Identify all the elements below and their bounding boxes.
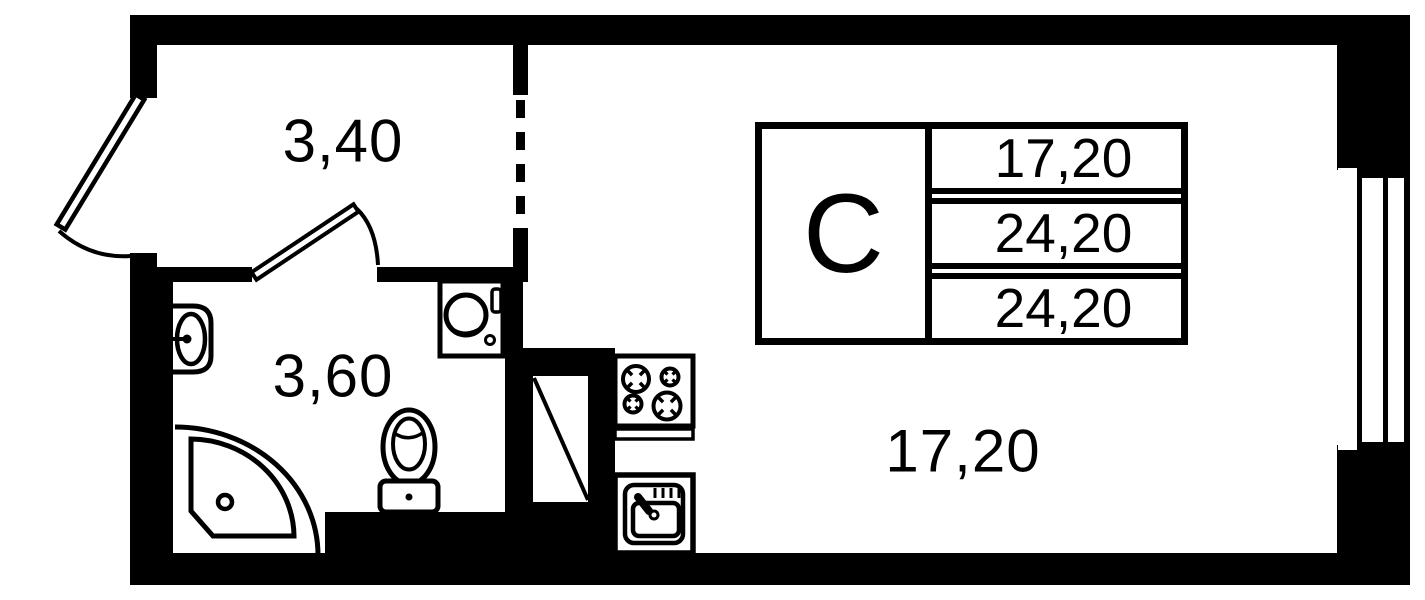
partition-stub-bottom — [513, 228, 528, 270]
interior-door-icon — [252, 204, 379, 279]
unit-stamp-table: С 17,20 24,20 24,20 — [755, 122, 1188, 345]
virtual-partition-dashed — [516, 100, 525, 214]
living-room-area-label: 17,20 — [885, 417, 1040, 486]
kitchen-sink-icon — [615, 475, 693, 553]
shower-cabin-icon — [175, 427, 318, 555]
interior-door-swing-arc — [357, 209, 378, 265]
floor-plan: 3,40 3,60 17,20 С 17,20 24,20 24,20 — [0, 0, 1425, 600]
floor-plan-drawing — [0, 0, 1425, 600]
bathroom-area-label: 3,60 — [273, 342, 394, 411]
washing-machine-icon — [440, 281, 503, 356]
window-icon — [1338, 168, 1410, 450]
bathroom-wall-top-left — [157, 267, 252, 282]
stove-icon — [615, 356, 693, 439]
wall-left-bottom — [130, 282, 173, 555]
stamp-row-total-area: 24,20 — [932, 198, 1181, 269]
interior-door-leaf — [252, 204, 359, 279]
ventilation-shaft-icon — [530, 373, 591, 505]
wall-top — [130, 15, 1410, 45]
unit-type-cell: С — [762, 129, 932, 338]
shower-drain — [218, 495, 232, 509]
stamp-row-living-area: 17,20 — [932, 129, 1181, 194]
wall-left-top — [130, 15, 157, 98]
shower-tray — [191, 439, 294, 536]
stamp-row-overall-area: 24,20 — [932, 273, 1181, 338]
hallway-area-label: 3,40 — [283, 107, 404, 176]
entrance-door-leaf — [57, 94, 145, 229]
partition-stub-top — [513, 45, 528, 95]
toilet-back-wall — [325, 512, 523, 555]
unit-stamp-values: 17,20 24,20 24,20 — [932, 129, 1181, 338]
entrance-door-swing-arc — [59, 231, 140, 256]
entrance-door-icon — [57, 94, 145, 256]
toilet-icon — [380, 410, 438, 512]
wall-right-top — [1337, 15, 1410, 170]
wall-bottom — [130, 553, 1410, 585]
